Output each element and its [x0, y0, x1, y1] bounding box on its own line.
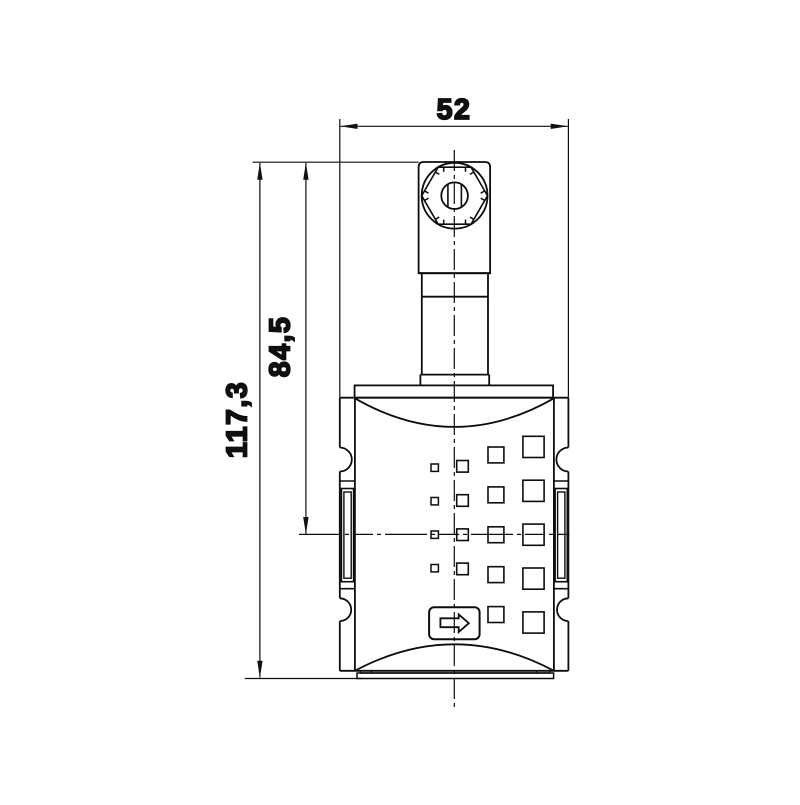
svg-text:52: 52: [437, 94, 472, 126]
svg-text:117,3: 117,3: [222, 381, 254, 458]
svg-text:84,5: 84,5: [265, 316, 297, 377]
